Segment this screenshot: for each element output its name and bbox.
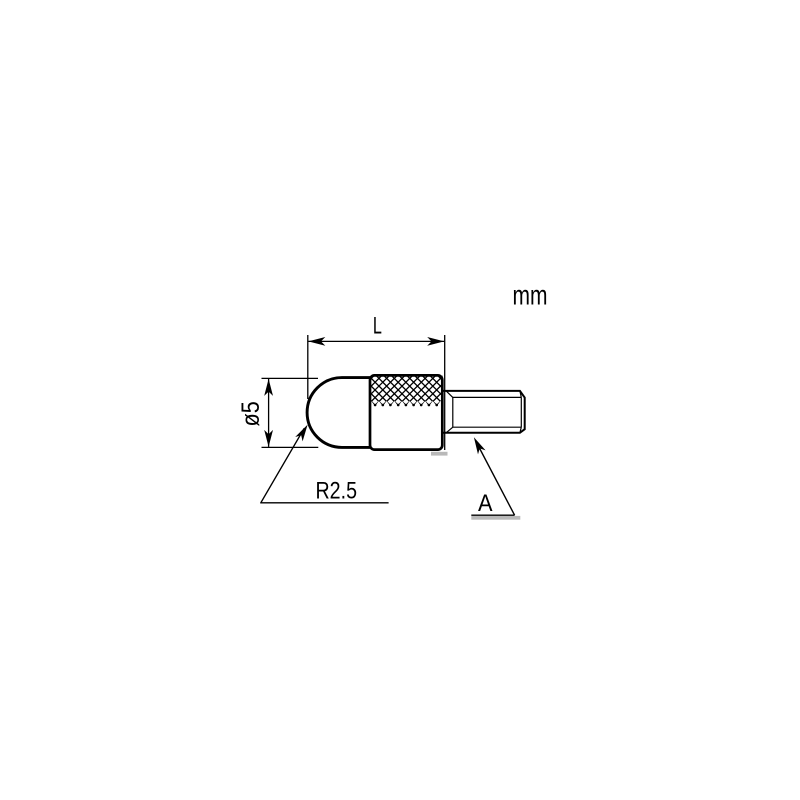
svg-text:R2.5: R2.5 [316, 477, 358, 504]
svg-text:ø5: ø5 [237, 401, 265, 426]
svg-text:mm: mm [513, 280, 548, 311]
svg-text:A: A [478, 490, 493, 517]
svg-text:L: L [373, 313, 382, 340]
